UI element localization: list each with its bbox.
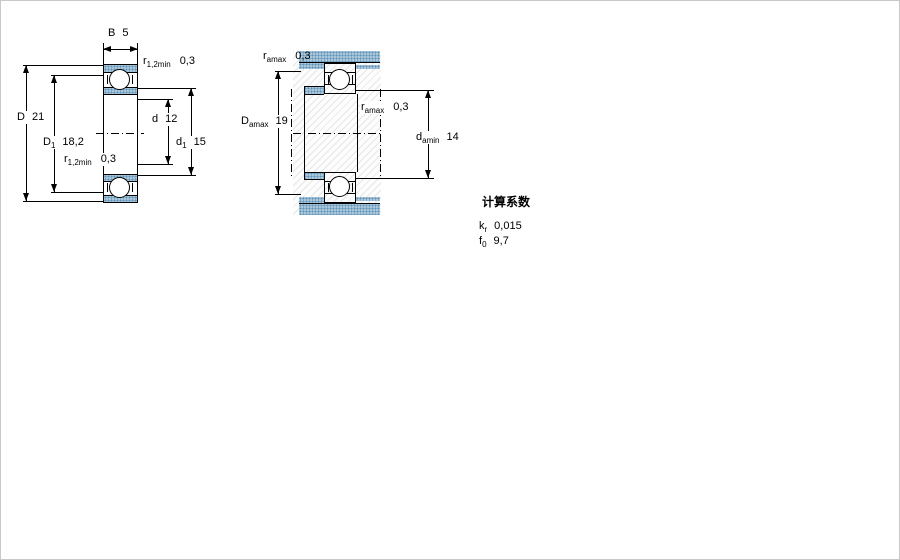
arrow-D-bottom [23, 193, 29, 201]
bearing-face-right-bottom [355, 182, 356, 193]
housing-band-bottom [299, 204, 380, 215]
ext-line-D1-top [51, 75, 103, 76]
raceway-shoulder-tick [352, 183, 353, 192]
ext-line-Da-bottom [275, 194, 301, 195]
dim-label-d1: d115 [175, 136, 207, 149]
housing-shoulder-bottom-left [299, 197, 324, 203]
shaft-shoulder-top [304, 87, 324, 94]
dim-value: 14 [446, 131, 458, 143]
dim-label-Da: Damax19 [240, 115, 289, 128]
arrow-B-right [130, 46, 138, 52]
factor-subscript: 0 [482, 240, 486, 249]
housing-shoulder-bottom-right [356, 197, 380, 201]
ext-line-D1-bottom [51, 192, 103, 193]
arrow-d1-bottom [188, 167, 194, 175]
dim-symbol: D [43, 136, 51, 148]
arrow-B-left [103, 46, 111, 52]
calculation-factors-title: 计算系数 [482, 196, 530, 209]
factor-subscript: r [485, 225, 488, 234]
dim-value: 18,2 [62, 136, 83, 148]
raceway-shoulder-tick [132, 183, 133, 192]
dim-subscript: amax [249, 120, 269, 129]
dim-value: 0,3 [295, 50, 310, 62]
arrow-Da-top [275, 71, 281, 79]
ext-line-D-top [23, 65, 103, 66]
dim-value: 5 [122, 27, 128, 39]
ball-bottom [109, 177, 130, 198]
dim-symbol: D [241, 115, 249, 127]
dim-subscript: 1 [182, 141, 186, 150]
dim-line-d [168, 99, 169, 164]
raceway-shoulder-tick [107, 183, 108, 192]
factor-symbol: k [479, 220, 485, 232]
bearing-face-left-top [324, 73, 325, 84]
dim-label-ra-mid: ramax0,3 [360, 101, 410, 114]
raceway-shoulder-tick [107, 75, 108, 84]
dim-label-D: D21 [16, 111, 45, 124]
ext-line-d1-bottom [137, 175, 196, 176]
arrow-Da-bottom [275, 186, 281, 194]
dim-label-r-bottom: r1,2min0,3 [63, 153, 117, 166]
factor-value: 9,7 [494, 235, 509, 247]
inner-ring-top-edge2 [104, 94, 137, 95]
dim-value: 0,3 [393, 101, 408, 113]
housing-shoulder-top-left [299, 63, 324, 69]
arrow-da-top [425, 90, 431, 98]
shaft-line-top [304, 94, 324, 95]
dim-value: 0,3 [101, 153, 116, 165]
axis-line-left [291, 89, 292, 179]
dim-label-ra-top: ramax0,3 [262, 50, 312, 63]
arrow-d-top [165, 99, 171, 107]
factor-row-f0: f09,7 [478, 235, 510, 248]
ext-line-da-top [356, 90, 434, 91]
ext-line-D-bottom [23, 201, 103, 202]
dim-line-Da [278, 71, 279, 194]
dim-value: 0,3 [180, 55, 195, 67]
dim-subscript: amin [422, 136, 439, 145]
dim-label-d: d12 [151, 113, 178, 126]
arrow-d1-top [188, 88, 194, 96]
dim-line-d1 [191, 88, 192, 175]
factor-row-kr: kr0,015 [478, 220, 523, 233]
ball-bottom-mounted [329, 176, 350, 197]
centerline-abutment [293, 133, 381, 134]
arrow-da-bottom [425, 170, 431, 178]
dim-label-da: damin14 [415, 131, 460, 144]
centerline-section [96, 133, 144, 134]
shaft-shoulder-bottom [304, 172, 324, 179]
ext-line-da-bottom [356, 178, 434, 179]
raceway-shoulder-tick [132, 75, 133, 84]
arrow-D1-bottom [51, 184, 57, 192]
dim-subscript: 1,2min [147, 60, 171, 69]
arrow-d-bottom [165, 156, 171, 164]
dim-value: 21 [32, 111, 44, 123]
dim-symbol: B [108, 27, 115, 39]
shaft-line-bottom [304, 172, 324, 173]
dim-line-D [26, 65, 27, 201]
dim-symbol: d [152, 113, 158, 125]
dim-label-B: B5 [107, 27, 129, 40]
housing-shoulder-top-right [356, 65, 380, 69]
bearing-face-right-top [355, 73, 356, 84]
dim-value: 19 [276, 115, 288, 127]
dim-subscript: 1,2min [68, 158, 92, 167]
bearing-drawing-canvas: B5 r1,2min0,3 D21 D118,2 r1,2min0,3 d12 … [0, 0, 900, 560]
ball-top-mounted [329, 69, 350, 90]
dim-value: 12 [165, 113, 177, 125]
shaft-shoulder-bottom-face [304, 179, 324, 180]
bearing-face-left-bottom [324, 182, 325, 193]
dim-subscript: amax [267, 55, 287, 64]
factor-value: 0,015 [494, 220, 522, 232]
dim-line-D1 [54, 75, 55, 192]
ball-top [109, 69, 130, 90]
dim-value: 15 [194, 136, 206, 148]
dim-symbol: D [17, 111, 25, 123]
dim-label-r-top: r1,2min0,3 [142, 55, 196, 68]
ext-line-d-bottom [137, 164, 173, 165]
arrow-D-top [23, 65, 29, 73]
dim-subscript: amax [365, 106, 385, 115]
dim-label-D1: D118,2 [42, 136, 85, 149]
arrow-D1-top [51, 75, 57, 83]
dim-subscript: 1 [51, 141, 55, 150]
raceway-shoulder-tick [352, 75, 353, 84]
